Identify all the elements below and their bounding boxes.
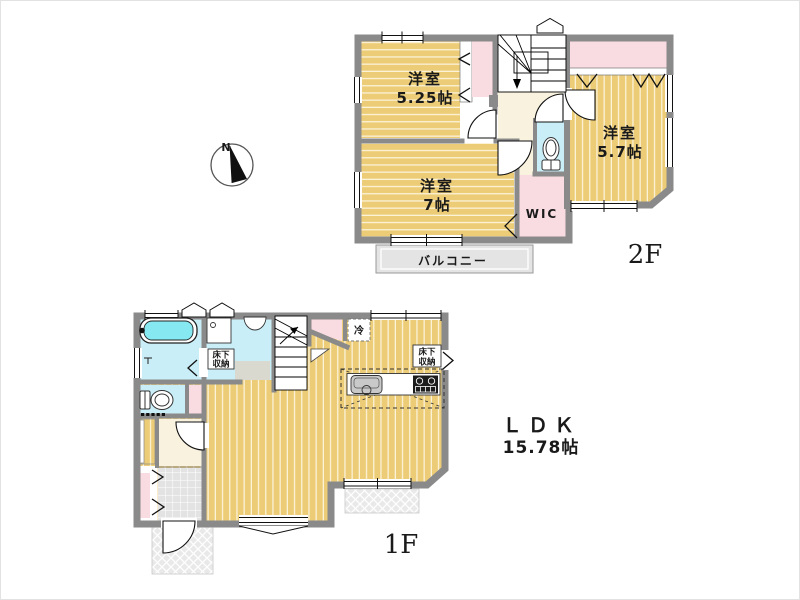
window-1f-top-kitchen	[371, 310, 441, 321]
toilet-icon-1f	[140, 391, 173, 410]
genkan-tile	[158, 468, 202, 521]
floor-2f-label: 2F	[628, 240, 663, 270]
faucet-icon	[139, 328, 145, 334]
compass-icon: N	[211, 141, 253, 186]
compass-north-label: N	[221, 141, 230, 154]
wic-label: WIC	[526, 207, 559, 221]
vent-icon-1f	[182, 303, 206, 317]
laundry-space	[235, 361, 270, 380]
kitchen-sink-icon	[351, 376, 382, 395]
window-2f-left-lower	[352, 172, 362, 208]
stairs-2f-icon	[498, 35, 566, 92]
toilet-icon-2f	[542, 138, 560, 171]
door-2f-nw	[468, 110, 496, 138]
window-2f-right-upper	[665, 75, 675, 112]
window-2f-e-bottom	[571, 200, 637, 212]
closet-2f-e	[569, 41, 669, 68]
stairs-1f-icon	[275, 316, 307, 390]
door-gap-bath	[199, 348, 208, 377]
room-2f-e-name: 洋室	[603, 124, 637, 142]
window-2f-left-upper	[352, 77, 362, 103]
floor-2f-plan: 洋室 5.25帖 洋室 7帖 洋室 5.7帖 WIC バルコニー 2F	[352, 19, 675, 274]
closet-front-2f-e	[569, 68, 669, 75]
vanity-icon	[207, 318, 231, 343]
terrace	[345, 489, 419, 513]
underfloor-storage-kitchen: 床下 収納	[413, 345, 441, 368]
closet-1f-toilet	[189, 385, 202, 415]
room-2f-e-size: 5.7帖	[597, 143, 643, 161]
svg-text:冷: 冷	[354, 324, 364, 337]
vent-icon-2f	[537, 19, 563, 34]
room-2f-nw-size: 5.25帖	[396, 89, 453, 107]
svg-text:収納: 収納	[418, 357, 435, 368]
svg-text:収納: 収納	[212, 359, 229, 370]
window-1f-left-bath	[132, 348, 142, 378]
floor-1f-plan: 床下 収納 冷	[132, 303, 580, 574]
room-2f-nw-name: 洋室	[408, 70, 442, 88]
shoe-cabinet	[138, 419, 155, 464]
ldk-name: ＬＤＫ	[502, 413, 580, 437]
room-2f-sw-size: 7帖	[423, 196, 450, 214]
floor-plan-image: 洋室 5.25帖 洋室 7帖 洋室 5.7帖 WIC バルコニー 2F	[0, 0, 800, 600]
vent-icon-1f	[210, 303, 234, 317]
room-2f-sw-name: 洋室	[420, 177, 454, 195]
window-2f-top	[382, 32, 423, 44]
window-1f-bottom-left	[239, 515, 308, 534]
window-2f-right-lower	[665, 118, 675, 167]
stove-icon	[413, 376, 438, 394]
window-1f-bottom-right	[344, 478, 411, 489]
closet-2f-nw	[472, 41, 495, 97]
underfloor-storage-washroom: 床下 収納	[208, 349, 234, 370]
floor-1f-label: 1F	[384, 530, 419, 560]
ldk-size: 15.78帖	[503, 437, 580, 458]
svg-text:床下: 床下	[418, 347, 436, 358]
fridge-space: 冷	[348, 319, 370, 341]
floor-plan-svg: 洋室 5.25帖 洋室 7帖 洋室 5.7帖 WIC バルコニー 2F	[0, 0, 800, 600]
window-2f-bottom	[391, 234, 462, 246]
balcony-label: バルコニー	[418, 254, 488, 268]
